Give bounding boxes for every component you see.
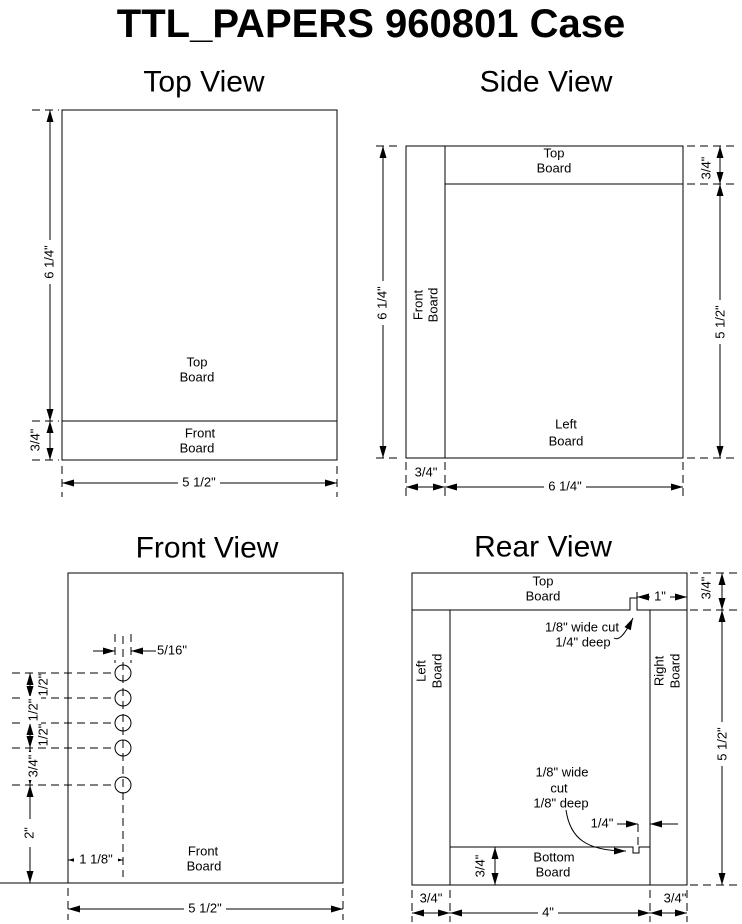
front-board-label: Front xyxy=(185,426,216,441)
front-board-label: Board xyxy=(426,288,441,323)
dim-gap2-label: 1/2" xyxy=(26,698,41,721)
front-view-outline xyxy=(68,573,343,883)
top-view-title: Top View xyxy=(143,66,265,99)
left-board-label: Board xyxy=(430,654,445,689)
front-view-title: Front View xyxy=(136,532,279,565)
dim-side-height-label: 5 1/2" xyxy=(715,727,730,761)
dim-gap3-label: 1/2" xyxy=(36,723,51,746)
side-view-outline xyxy=(406,146,683,458)
dim-depth-label: 6 1/4" xyxy=(548,479,582,494)
dim-width-label: 5 1/2" xyxy=(182,475,216,490)
top-board-label: Top xyxy=(187,355,208,370)
dim-front-thickness-label: 3/4" xyxy=(415,465,438,480)
dim-bottom-thickness-label: 3/4" xyxy=(473,854,488,877)
dim-hole-diameter-label: 5/16" xyxy=(157,643,187,658)
dim-height-label: 6 1/4" xyxy=(375,286,390,320)
dim-inner-height-label: 5 1/2" xyxy=(713,305,728,339)
rear-view-title: Rear View xyxy=(474,531,612,564)
side-view: Side View Top Board Front Board Left Boa… xyxy=(375,66,738,497)
bottom-cut-note: cut xyxy=(550,781,568,796)
top-board-label: Board xyxy=(537,161,572,176)
dim-bottom-offset-label: 2" xyxy=(22,827,37,839)
rear-view: Rear View 1" Top Board Left Board Right … xyxy=(412,531,740,923)
dim-hole-inset-label: 1 1/8" xyxy=(79,852,113,867)
left-board-label: Left xyxy=(414,660,429,682)
dim-left-width-label: 3/4" xyxy=(420,891,443,906)
top-board-label: Top xyxy=(544,146,565,161)
drawing-canvas: TTL_PAPERS 960801 Case Top View Top Boar… xyxy=(0,0,742,924)
front-board-label: Front xyxy=(188,844,219,859)
dim-top-thickness-label: 3/4" xyxy=(699,156,714,179)
bottom-board-label: Board xyxy=(536,865,571,880)
top-cut-note: 1/8" wide cut xyxy=(545,620,619,635)
top-board-label: Board xyxy=(180,370,215,385)
top-view-outline xyxy=(62,110,337,460)
right-board-label: Right xyxy=(652,655,667,686)
right-board-label: Board xyxy=(668,654,683,689)
page-title: TTL_PAPERS 960801 Case xyxy=(117,2,625,46)
left-board-label: Board xyxy=(549,434,584,449)
dim-gap1-label: 1/2" xyxy=(36,673,51,696)
front-view: Front View 5/16" 1/2" 1/2" 1/2" 3/4" 2" … xyxy=(0,532,343,921)
dim-inner-width-label: 4" xyxy=(542,905,554,920)
front-board-label: Board xyxy=(180,441,215,456)
extension-line xyxy=(32,110,59,460)
bottom-cut-note: 1/8" wide xyxy=(535,765,588,780)
dim-top-thickness-label: 3/4" xyxy=(699,576,714,599)
dim-right-width-label: 3/4" xyxy=(664,891,687,906)
front-board-label: Front xyxy=(411,289,426,320)
dim-bottom-notch-offset-label: 1/4" xyxy=(591,816,614,831)
left-board-label: Left xyxy=(555,417,577,432)
bottom-board-label: Bottom xyxy=(533,850,574,865)
dim-width-label: 5 1/2" xyxy=(188,901,222,916)
front-board-label: Board xyxy=(187,859,222,874)
top-board-label: Top xyxy=(533,574,554,589)
top-view: Top View Top Board Front Board 6 1/4" 3/… xyxy=(28,66,337,498)
dim-height-label: 6 1/4" xyxy=(42,245,57,279)
side-view-title: Side View xyxy=(480,66,613,99)
dim-front-thickness-label: 3/4" xyxy=(28,428,43,451)
top-cut-note: 1/4" deep xyxy=(555,635,610,650)
dim-gap4-label: 3/4" xyxy=(26,754,41,777)
dim-notch-offset-label: 1" xyxy=(654,589,666,604)
bottom-cut-note: 1/8" deep xyxy=(533,796,588,811)
top-board-label: Board xyxy=(526,589,561,604)
